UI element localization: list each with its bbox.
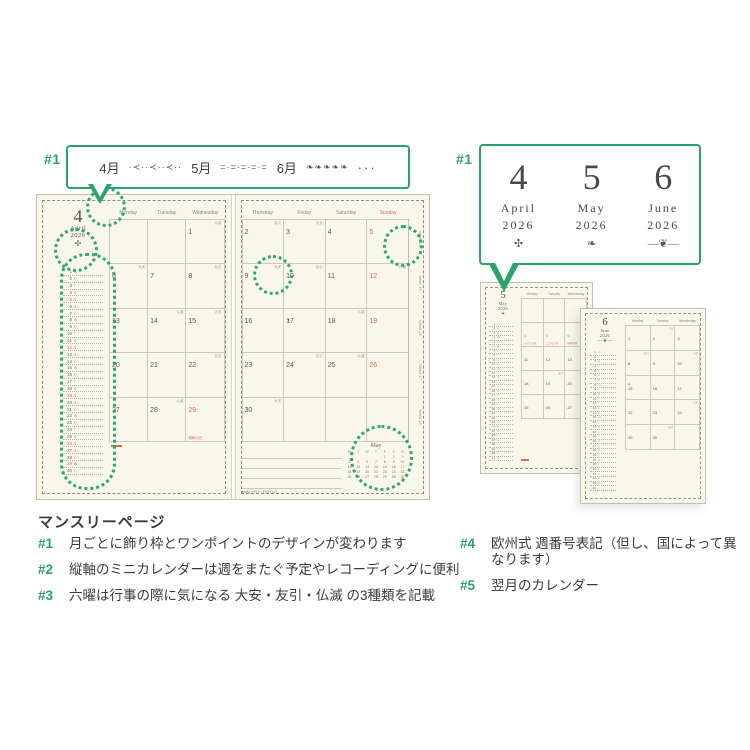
notes-lines: [242, 449, 342, 489]
day-header: Thursday: [242, 210, 284, 217]
date-cell: 2大安: [651, 326, 676, 351]
month-label-may: 5月: [191, 158, 211, 177]
holiday-label: こどもの日: [546, 342, 559, 345]
date-number: 3: [286, 229, 290, 236]
date-cell: 7: [148, 264, 186, 308]
date-number: 18: [328, 318, 336, 325]
april-name: April: [501, 201, 536, 216]
day-header: Tuesday: [650, 319, 675, 324]
date-number: 26: [369, 362, 377, 369]
date-number: 16: [653, 386, 657, 391]
day-header: Sunday: [367, 210, 409, 217]
mini-date: 25: [345, 475, 354, 480]
date-cell: 1: [626, 326, 651, 351]
right-day-headers: ThursdayFridaySaturdaySunday: [242, 210, 410, 217]
rokuyo-label: 大安: [668, 327, 673, 330]
date-cell: 4みどりの日: [522, 323, 544, 347]
date-cell: 8友引: [626, 351, 651, 376]
date-number: 2: [653, 336, 655, 341]
may-year: 2026: [576, 218, 608, 233]
date-number: 23: [653, 410, 657, 415]
date-number: 5: [546, 333, 548, 338]
annotation-circle-3: [253, 255, 293, 295]
may-name: May: [576, 201, 608, 216]
rokuyo-label: 仏滅: [215, 221, 222, 225]
section-heading: マンスリーページ: [38, 511, 165, 532]
date-cell: 29: [626, 425, 651, 450]
june-heading-sample: 6 June 2026 ―❦―: [647, 159, 679, 250]
june-day-headers: MondayTuesdayWednesday: [625, 319, 700, 324]
may-big-number: 5: [576, 159, 608, 195]
feature-list-right: #4 欧州式 週番号表記（但し、国によって異なります） #5 翌月のカレンダー: [460, 536, 750, 594]
date-number: 17: [677, 386, 681, 391]
rokuyo-label: 友引: [215, 354, 222, 358]
date-number: 5: [369, 229, 373, 236]
day-header: Tuesday: [148, 210, 187, 217]
rokuyo-label: 友引: [316, 265, 323, 269]
date-number: 2: [245, 229, 249, 236]
feature-text: 月ごとに飾り枠とワンポイントのデザインが変わります: [69, 536, 407, 552]
date-number: 22: [628, 410, 632, 415]
date-number: 19: [369, 318, 377, 325]
june-big-number: 6: [647, 159, 679, 195]
date-number: 4: [328, 229, 332, 236]
rokuyo-label: 大安: [215, 310, 222, 314]
date-number: 19: [546, 381, 550, 386]
day-header: Wednesday: [186, 210, 225, 217]
week-number-label: Week 18: [409, 397, 423, 441]
date-cell: 10仏滅: [675, 351, 700, 376]
june-year: 2026: [647, 218, 679, 233]
rokuyo-label: 仏滅: [176, 310, 183, 314]
date-cell: 28仏滅: [148, 398, 186, 442]
date-cell: [544, 299, 566, 323]
june-vertical-mini-calendar: 1m2t3w4t5f6s7s8m9t10w11t12f13s14s15m16t1…: [590, 351, 616, 491]
date-cell: 14仏滅: [148, 309, 186, 353]
date-cell: 11: [326, 264, 368, 308]
month-decoration-callout: 4月 ·≺··≺··≺·· 5月 =·=·=·=·= 6月 ❧❧❧❧❧ ···: [66, 145, 410, 189]
date-cell: 11: [522, 347, 544, 371]
date-cell: 16: [651, 376, 676, 401]
mini-calendar-row: 31s: [489, 457, 513, 461]
date-cell: 15大安: [186, 309, 224, 353]
rokuyo-label: 大安: [693, 401, 698, 404]
annotation-circle-4: [383, 225, 423, 267]
small-page-june: 6 June 2026 ―❦― MondayTuesdayWednesday 1…: [580, 308, 706, 504]
feature-text: 縦軸のミニカレンダーは週をまたぐ予定やレコーディングに便利: [69, 562, 460, 578]
rokuyo-label: 友引: [316, 354, 323, 358]
feature-item-5: #5 翌月のカレンダー: [460, 578, 750, 594]
date-number: 29: [188, 407, 196, 414]
rokuyo-label: 大安: [274, 399, 281, 403]
date-number: 15: [628, 386, 632, 391]
feature-text: 欧州式 週番号表記（但し、国によって異なります）: [491, 536, 750, 568]
date-cell: 18仏滅: [326, 309, 368, 353]
may-ornament-icon: ❧: [576, 237, 608, 250]
date-cell: [148, 220, 186, 264]
date-number: 25: [524, 405, 528, 410]
june-border-pattern: ❧❧❧❧❧: [306, 162, 349, 173]
april-border-pattern: ·≺··≺··≺··: [129, 162, 183, 173]
month-ornament-icon: ―❦―: [590, 338, 620, 344]
date-cell: 23: [243, 353, 285, 397]
promo-image-canvas: #1 4月 ·≺··≺··≺·· 5月 =·=·=·=·= 6月 ❧❧❧❧❧ ·…: [0, 0, 750, 750]
date-number: 6: [567, 333, 569, 338]
date-cell: 3大安: [284, 220, 326, 264]
date-cell: 1仏滅: [186, 220, 224, 264]
date-cell: 18: [522, 371, 544, 395]
april-heading-sample: 4 April 2026 ✣: [501, 159, 536, 250]
top-bubble-tail-inner: [92, 182, 108, 197]
april-ornament-icon: ✣: [501, 237, 536, 250]
mini-calendar-row: 30t: [590, 486, 616, 491]
date-cell: 29昭和の日: [186, 398, 224, 442]
rokuyo-label: 仏滅: [176, 399, 183, 403]
moon-phase-icon: ●: [628, 382, 630, 386]
holiday-label: 昭和の日: [188, 436, 202, 440]
day-header: Monday: [521, 292, 543, 297]
feature-tag: #2: [38, 562, 60, 578]
date-number: 10: [677, 361, 681, 366]
date-cell: [110, 220, 148, 264]
feature-item-2: #2 縦軸のミニカレンダーは週をまたぐ予定やレコーディングに便利: [38, 562, 460, 578]
month-label-june: 6月: [277, 158, 297, 177]
date-number: 13: [567, 357, 571, 362]
annotation-circle-5: [350, 425, 413, 491]
may-month-grid: 4みどりの日5こどもの日6振替休日111213大安1819友引20252627仏…: [521, 298, 587, 419]
rokuyo-label: 友引: [215, 265, 222, 269]
date-number: 7: [150, 273, 154, 280]
rokuyo-label: 友引: [644, 352, 649, 355]
holiday-label: みどりの日: [524, 342, 537, 345]
date-number: 18: [524, 381, 528, 386]
date-number: 9: [653, 361, 655, 366]
month-ornament-icon: ❧: [489, 311, 517, 317]
rokuyo-label: 友引: [668, 426, 673, 429]
date-cell: 12: [544, 347, 566, 371]
rokuyo-label: 仏滅: [693, 352, 698, 355]
feature-tag: #5: [460, 578, 482, 594]
date-cell: 5こどもの日: [544, 323, 566, 347]
feature-tag: #4: [460, 536, 482, 568]
date-number: 1: [628, 336, 630, 341]
date-number: 24: [677, 410, 681, 415]
moon-phase-legend: ●NM ◑FQ ○FM ◐LQ: [242, 489, 278, 494]
week-number-label: Week 17: [409, 352, 423, 396]
small-page-may: 5 May 2026 ❧ MondayTuesdayWednesday 4みどり…: [480, 282, 593, 474]
june-month-grid: 12大安38友引910仏滅15●1617222324大安2930友引: [625, 325, 700, 450]
april-big-number: 4: [501, 159, 536, 195]
feature-item-1: #1 月ごとに飾り枠とワンポイントのデザインが変わります: [38, 536, 460, 552]
date-cell: 19友引: [544, 371, 566, 395]
feature-tag: #3: [38, 588, 60, 604]
date-cell: 24友引: [284, 353, 326, 397]
date-number: 23: [245, 362, 253, 369]
date-cell: 17●: [284, 309, 326, 353]
june-month-block: 6 June 2026 ―❦―: [590, 317, 620, 344]
date-cell: 19: [367, 309, 409, 353]
rokuyo-label: 友引: [558, 372, 563, 375]
may-notes-red-mark: [521, 459, 529, 461]
day-header: Monday: [625, 319, 650, 324]
week-number-label: Week 15: [409, 263, 423, 307]
moon-phase-icon: ●: [287, 318, 289, 322]
date-number: 8: [628, 361, 630, 366]
date-number: 14: [150, 318, 158, 325]
callout-1-right-label: #1: [456, 151, 473, 167]
date-cell: 26: [367, 353, 409, 397]
rokuyo-label: 大安: [138, 265, 145, 269]
may-vertical-mini-calendar: 1f2s3s4m5t6w7t8f9s10s11m12t13w14t15f16s1…: [489, 323, 513, 461]
date-cell: 9: [651, 351, 676, 376]
june-ornament-icon: ―❦―: [647, 237, 679, 250]
date-number: 15: [188, 318, 196, 325]
rokuyo-label: 友引: [274, 221, 281, 225]
day-header: Friday: [283, 210, 325, 217]
may-month-block: 5 May 2026 ❧: [489, 290, 517, 317]
may-day-headers: MondayTuesdayWednesday: [521, 292, 587, 297]
feature-tag: #1: [38, 536, 60, 552]
date-cell: [675, 425, 700, 450]
date-number: 27: [567, 405, 571, 410]
june-name: June: [647, 201, 679, 216]
date-number: 11: [524, 357, 528, 362]
date-cell: 30友引: [651, 425, 676, 450]
april-year: 2026: [501, 218, 536, 233]
date-cell: 17: [675, 376, 700, 401]
date-cell: 8友引: [186, 264, 224, 308]
feature-text: 六曜は行事の際に気になる 大安・友引・仏滅 の3種類を記載: [69, 588, 435, 604]
date-number: 20: [567, 381, 571, 386]
date-number: 30: [653, 435, 657, 440]
date-cell: 22友引: [186, 353, 224, 397]
week-number-label: Week 16: [409, 308, 423, 352]
feature-item-3: #3 六曜は行事の際に気になる 大安・友引・仏滅 の3種類を記載: [38, 588, 460, 604]
date-number: 12: [369, 273, 377, 280]
date-cell: 16: [243, 309, 285, 353]
ellipsis: ···: [358, 160, 377, 175]
date-cell: 3: [675, 326, 700, 351]
may-heading-sample: 5 May 2026 ❧: [576, 159, 608, 250]
month-number: 6: [590, 317, 620, 328]
day-header: Wednesday: [565, 292, 587, 297]
date-cell: 26: [544, 395, 566, 419]
date-cell: [284, 398, 326, 442]
date-number: 16: [245, 318, 253, 325]
right-bubble-tail-inner: [494, 261, 514, 281]
date-number: 25: [328, 362, 336, 369]
date-number: 24: [286, 362, 294, 369]
month-heading-callout: 4 April 2026 ✣ 5 May 2026 ❧ 6 June 2026 …: [479, 144, 701, 265]
date-number: 1: [188, 229, 192, 236]
feature-list-left: #1 月ごとに飾り枠とワンポイントのデザインが変わります #2 縦軸のミニカレン…: [38, 536, 460, 604]
date-number: 9: [245, 273, 249, 280]
date-cell: [522, 299, 544, 323]
date-number: 8: [188, 273, 192, 280]
annotation-rect-2: [60, 253, 116, 490]
day-header: Wednesday: [675, 319, 700, 324]
date-number: 4: [524, 333, 526, 338]
day-header: Tuesday: [543, 292, 565, 297]
date-number: 26: [546, 405, 550, 410]
date-cell: 22: [626, 400, 651, 425]
rokuyo-label: 仏滅: [357, 354, 364, 358]
date-number: 28: [150, 407, 158, 414]
date-number: 21: [150, 362, 158, 369]
feature-text: 翌月のカレンダー: [491, 578, 599, 594]
left-month-grid: 1仏滅6大安78友引1314仏滅15大安202122友引2728仏滅29昭和の日: [109, 219, 225, 442]
date-number: 3: [677, 336, 679, 341]
rokuyo-label: 仏滅: [357, 310, 364, 314]
date-cell: 15●: [626, 376, 651, 401]
date-cell: 25仏滅: [326, 353, 368, 397]
date-cell: 21: [148, 353, 186, 397]
date-cell: 25: [522, 395, 544, 419]
date-cell: 30大安: [243, 398, 285, 442]
feature-item-4: #4 欧州式 週番号表記（但し、国によって異なります）: [460, 536, 750, 568]
date-number: 30: [245, 407, 253, 414]
date-number: 22: [188, 362, 196, 369]
left-day-headers: MondayTuesdayWednesday: [109, 210, 225, 217]
date-cell: 24大安: [675, 400, 700, 425]
date-number: 12: [546, 357, 550, 362]
date-cell: 4: [326, 220, 368, 264]
holiday-label: 振替休日: [567, 342, 577, 345]
date-cell: 23: [651, 400, 676, 425]
callout-1-top-label: #1: [44, 151, 61, 167]
date-number: 29: [628, 435, 632, 440]
date-cell: 12仏滅: [367, 264, 409, 308]
month-label-april: 4月: [99, 158, 119, 177]
rokuyo-label: 大安: [316, 221, 323, 225]
day-header: Saturday: [325, 210, 367, 217]
date-number: 11: [328, 273, 335, 280]
may-border-pattern: =·=·=·=·=: [220, 162, 267, 172]
